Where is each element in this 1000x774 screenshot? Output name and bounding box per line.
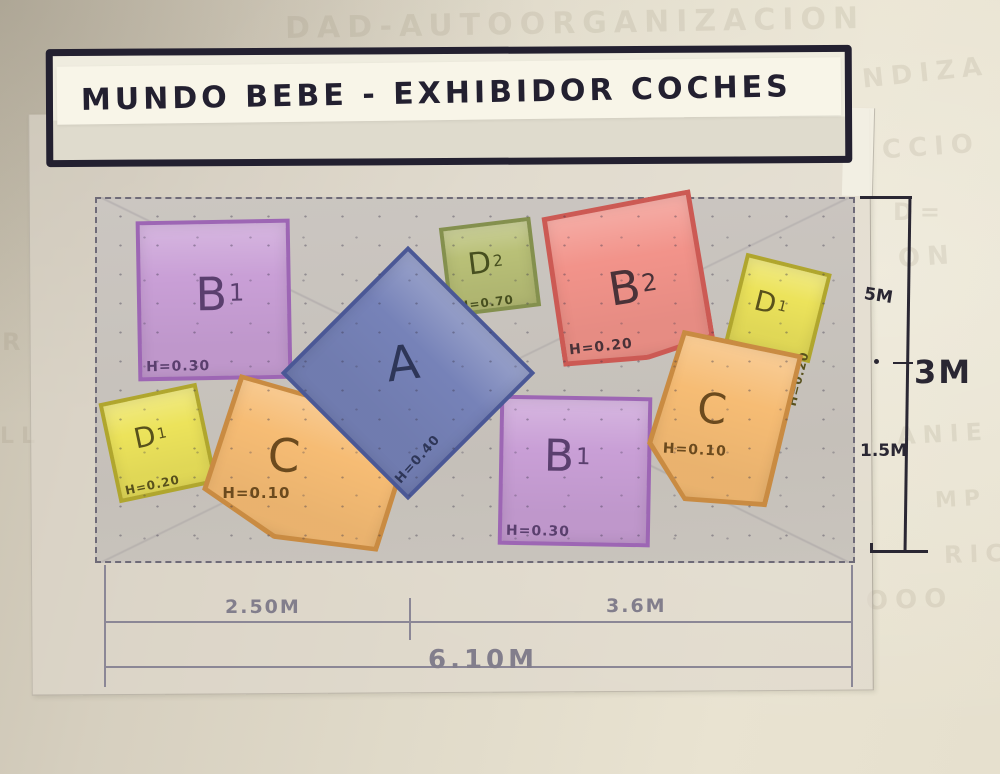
dimension-line-bottom-upper (105, 621, 852, 623)
block-letter: D (751, 287, 779, 319)
block-letter: B (195, 271, 227, 318)
dimension-tick-middle (893, 362, 913, 364)
dimension-label-bottom-right: 3.6M (606, 595, 667, 617)
ghost-text: RIC (944, 539, 1000, 569)
block-height-label: H=0.30 (146, 358, 210, 375)
display-block-b1-bottom: B1 H=0.30 (498, 395, 653, 548)
ghost-text: ON (897, 240, 957, 274)
ghost-text: MP (934, 486, 987, 514)
ghost-text: D= (893, 198, 947, 226)
block-letter: B (543, 434, 574, 479)
block-height-label: H=0.10 (662, 441, 727, 460)
dimension-tick-bottom-middle (409, 598, 411, 640)
block-subscript: 2 (640, 271, 659, 297)
block-subscript: 2 (492, 254, 504, 271)
block-letter: C (266, 431, 301, 479)
dimension-foot-mark (870, 543, 873, 553)
block-label: B1 (490, 381, 645, 534)
block-subscript: 1 (156, 426, 168, 442)
dimension-dot-middle (874, 359, 879, 364)
display-block-b1-top-left: B1 H=0.30 (136, 219, 293, 382)
extension-line-right (851, 565, 853, 687)
block-label: B1 (142, 213, 299, 376)
ghost-text: R (2, 328, 27, 356)
dimension-label-bottom-left: 2.50M (225, 596, 301, 618)
extension-line-left (104, 565, 106, 687)
dimension-label-right-lower: 1.5M (860, 441, 907, 461)
dimension-label-right-total: 3M (914, 353, 972, 391)
block-letter: B (605, 262, 643, 312)
scanned-drawing-canvas: DAD-AUTOORGANIZACIONNDIZACCIOD=ONANIEMPR… (0, 0, 1000, 774)
display-block-d1-left: D1 H=0.20 (98, 383, 217, 504)
block-height-label: H=0.10 (222, 484, 290, 502)
block-letter: A (384, 338, 422, 390)
block-height-label: H=0.30 (506, 523, 570, 540)
ghost-text: OOO (866, 583, 954, 616)
ghost-text: NDIZA (861, 51, 990, 94)
ghost-text: CCIO (881, 129, 981, 166)
title-box: MUNDO BEBE - EXHIBIDOR COCHES (46, 45, 853, 167)
dimension-label-right-upper: 5M (863, 284, 895, 308)
ghost-text: DAD-AUTOORGANIZACION (285, 1, 866, 46)
block-label: A (303, 263, 504, 464)
block-letter: D (131, 422, 158, 454)
block-subscript: 1 (776, 299, 789, 315)
dimension-label-bottom-total: 6.10M (428, 645, 538, 675)
dimension-tick-top (860, 196, 912, 199)
dimension-tick-bottom (872, 550, 928, 553)
block-letter: C (696, 387, 729, 431)
block-subscript: 1 (229, 282, 245, 306)
ghost-text: ANIE (896, 418, 989, 451)
block-subscript: 1 (576, 446, 591, 469)
